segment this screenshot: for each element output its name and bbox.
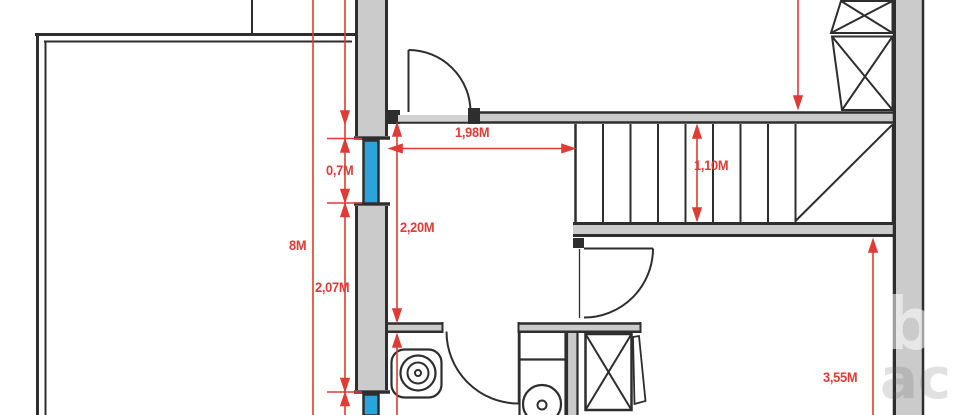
central-wall-fill [355,0,388,415]
stair-bottom-wall-fill [573,225,897,235]
right-room-door-jamb [573,238,584,248]
dimension-label-right-room-height: 3,55M [823,371,857,385]
dimension-label-upper-window: 0,7M [326,164,353,178]
upper-door [409,50,471,112]
floor-plan: 8M 0,7M 2,07M 1,98M 2,20M 1,10M 3,55M b … [0,0,960,415]
window-lower [354,390,390,415]
floor-plan-linework [0,0,960,415]
central-wall [354,0,390,415]
arrowhead-down [341,379,349,391]
upper-stair-crossed-boxes [831,1,893,110]
bathroom-door-swing-arc [447,332,519,404]
left-room-walls [35,0,358,415]
shower [586,334,646,410]
arrowhead-left [390,145,402,153]
staircase [576,124,894,222]
bathroom-door [447,332,519,404]
arrowhead-down [794,96,802,108]
arrowhead-down [393,309,401,321]
window-upper [354,136,390,206]
right-room-door [573,238,653,318]
dimension-label-hallway-height: 2,20M [400,221,434,235]
dimension-label-overall-height: 8M [289,239,306,253]
arrowhead-down [693,208,701,220]
arrowhead-up [341,140,349,152]
shower-door-panel [633,336,646,404]
dimension-label-staircase-depth: 1,10M [694,159,728,173]
arrowhead-up [341,205,349,217]
dimension-label-hallway-width: 1,98M [455,126,489,140]
dimension-label-lower-wall: 2,07M [315,281,349,295]
right-exterior-wall [895,0,924,415]
window-upper-glass [364,141,379,204]
arrowhead-right [562,145,574,153]
right-room-door-swing-arc [584,249,653,318]
arrowhead-up [693,126,701,138]
window-lower-glass [364,395,379,415]
door-threshold [398,115,470,123]
arrowhead-up [869,240,877,252]
stair-bottom-wall [573,224,897,236]
right-wall-fill [896,0,922,415]
arrowhead-up [393,124,401,136]
toilet [392,350,442,398]
arrowhead-down [341,190,349,202]
arrowhead-up [393,335,401,347]
arrowhead-up [341,394,349,406]
door-jamb-left [386,110,400,124]
upper-horizontal-wall [386,108,897,124]
sink-vanity [519,333,566,415]
stair-landing-diagonal [796,125,893,221]
bathroom-divider-wall-fill [567,333,579,415]
upper-door-swing-arc [409,50,471,112]
arrowhead-down [341,111,349,123]
